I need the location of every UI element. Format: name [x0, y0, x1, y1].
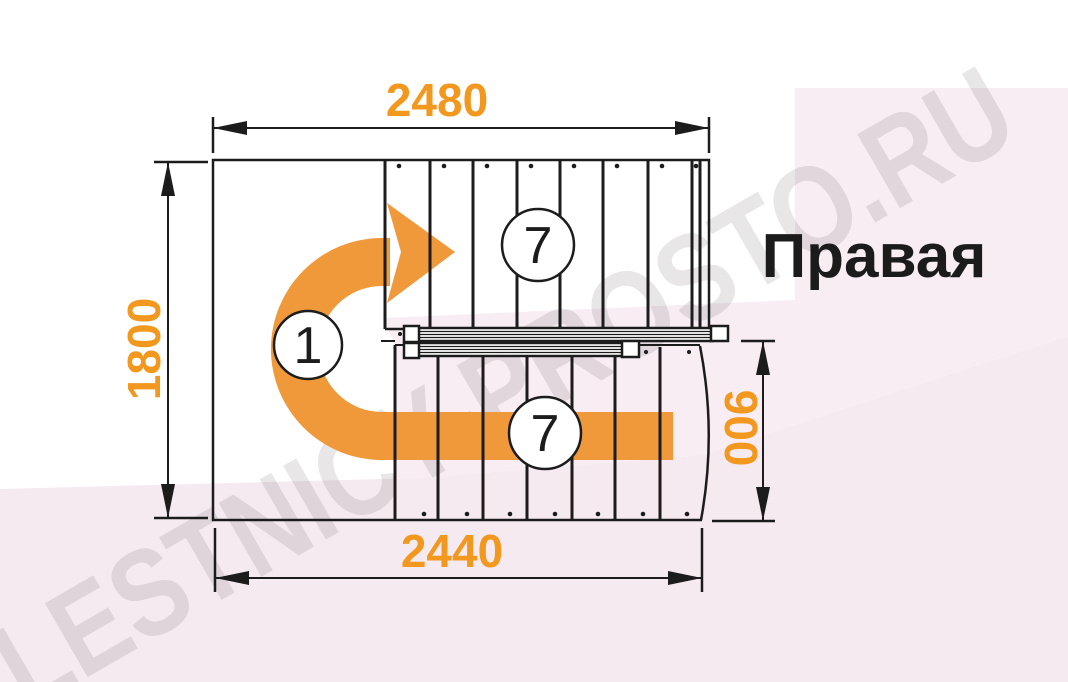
dimension-top-arrow-right: [675, 121, 709, 135]
dimension-top-arrow-left: [213, 121, 247, 135]
upper-flight-step-count: 7: [524, 217, 553, 275]
staircase-plan-diagram: LESTNICY-PROSTO.RU: [0, 0, 1068, 682]
start-point-number: 1: [294, 317, 323, 375]
dimension-left-value: 1800: [118, 298, 170, 400]
dimension-left-arrow-top: [161, 162, 175, 196]
upper-flight-screw-dots: [397, 164, 699, 169]
dimension-top: 2480: [213, 74, 709, 153]
lower-flight-step-count: 7: [531, 405, 560, 463]
lower-flight-badge: 7: [509, 397, 581, 469]
rail-post-left-lower: [404, 343, 419, 358]
rail-dot: [398, 332, 402, 336]
dimension-left: 1800: [118, 162, 208, 518]
rail-post-left-upper: [404, 326, 419, 342]
arrow-head: [387, 203, 455, 303]
dimension-right-value: 900: [715, 390, 767, 467]
upper-flight-badge: 7: [502, 209, 574, 281]
direction-title: Правая: [762, 222, 987, 291]
rail-post-right-lower: [622, 341, 639, 357]
rail-post-right-upper: [711, 326, 728, 341]
dimension-bottom-value: 2440: [401, 525, 503, 577]
dimension-top-value: 2480: [386, 74, 488, 126]
start-point-badge: 1: [274, 311, 342, 379]
